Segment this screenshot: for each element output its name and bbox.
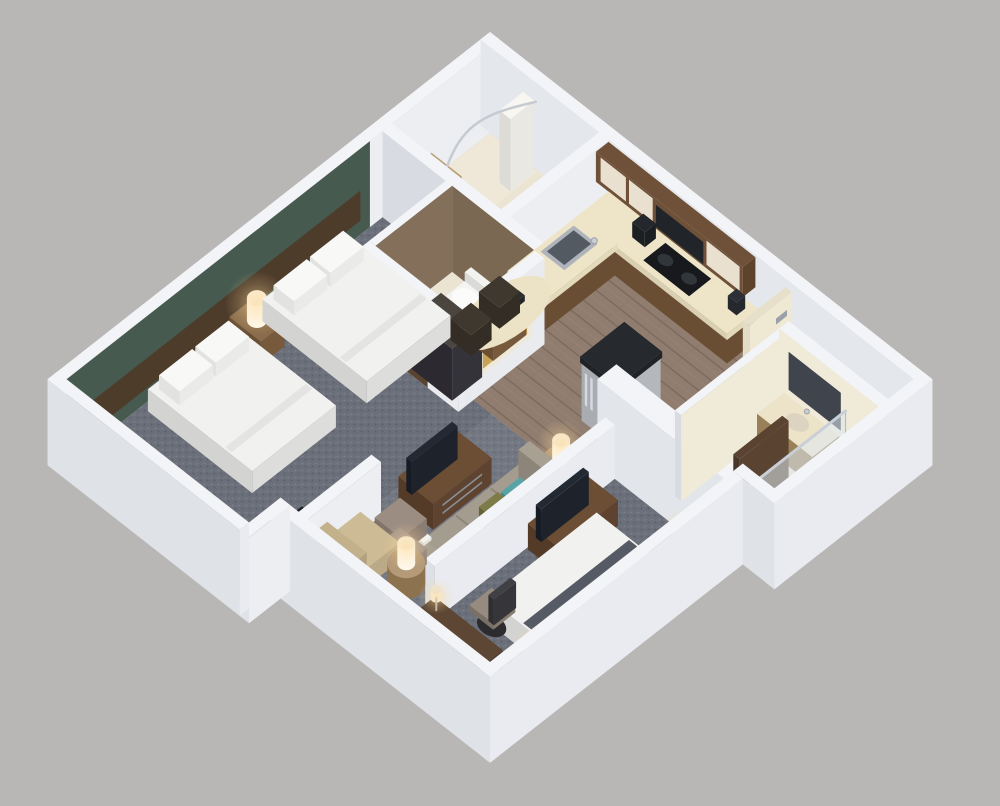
living-tv [406, 458, 412, 495]
fridge-handle-1 [585, 373, 587, 407]
wall-bath2-west [675, 410, 681, 501]
desk-lamp-glow [418, 578, 454, 614]
bath2-faucet [804, 409, 809, 414]
outer-wall-south-living-bedroom2 [490, 669, 500, 762]
sink-faucet [591, 238, 597, 244]
office-chair-back [488, 595, 494, 625]
outer-wall-bath-block-south [774, 496, 784, 589]
suite-render-svg [0, 0, 1000, 806]
bedroom2-tv [536, 505, 542, 542]
outer-wall-south-bedroom1 [240, 522, 249, 616]
living-lamp-south-glow [382, 522, 430, 570]
fridge-handle-2 [590, 377, 592, 411]
shower-curtain [500, 111, 511, 192]
suite-3d-floor-plan [0, 0, 1000, 806]
